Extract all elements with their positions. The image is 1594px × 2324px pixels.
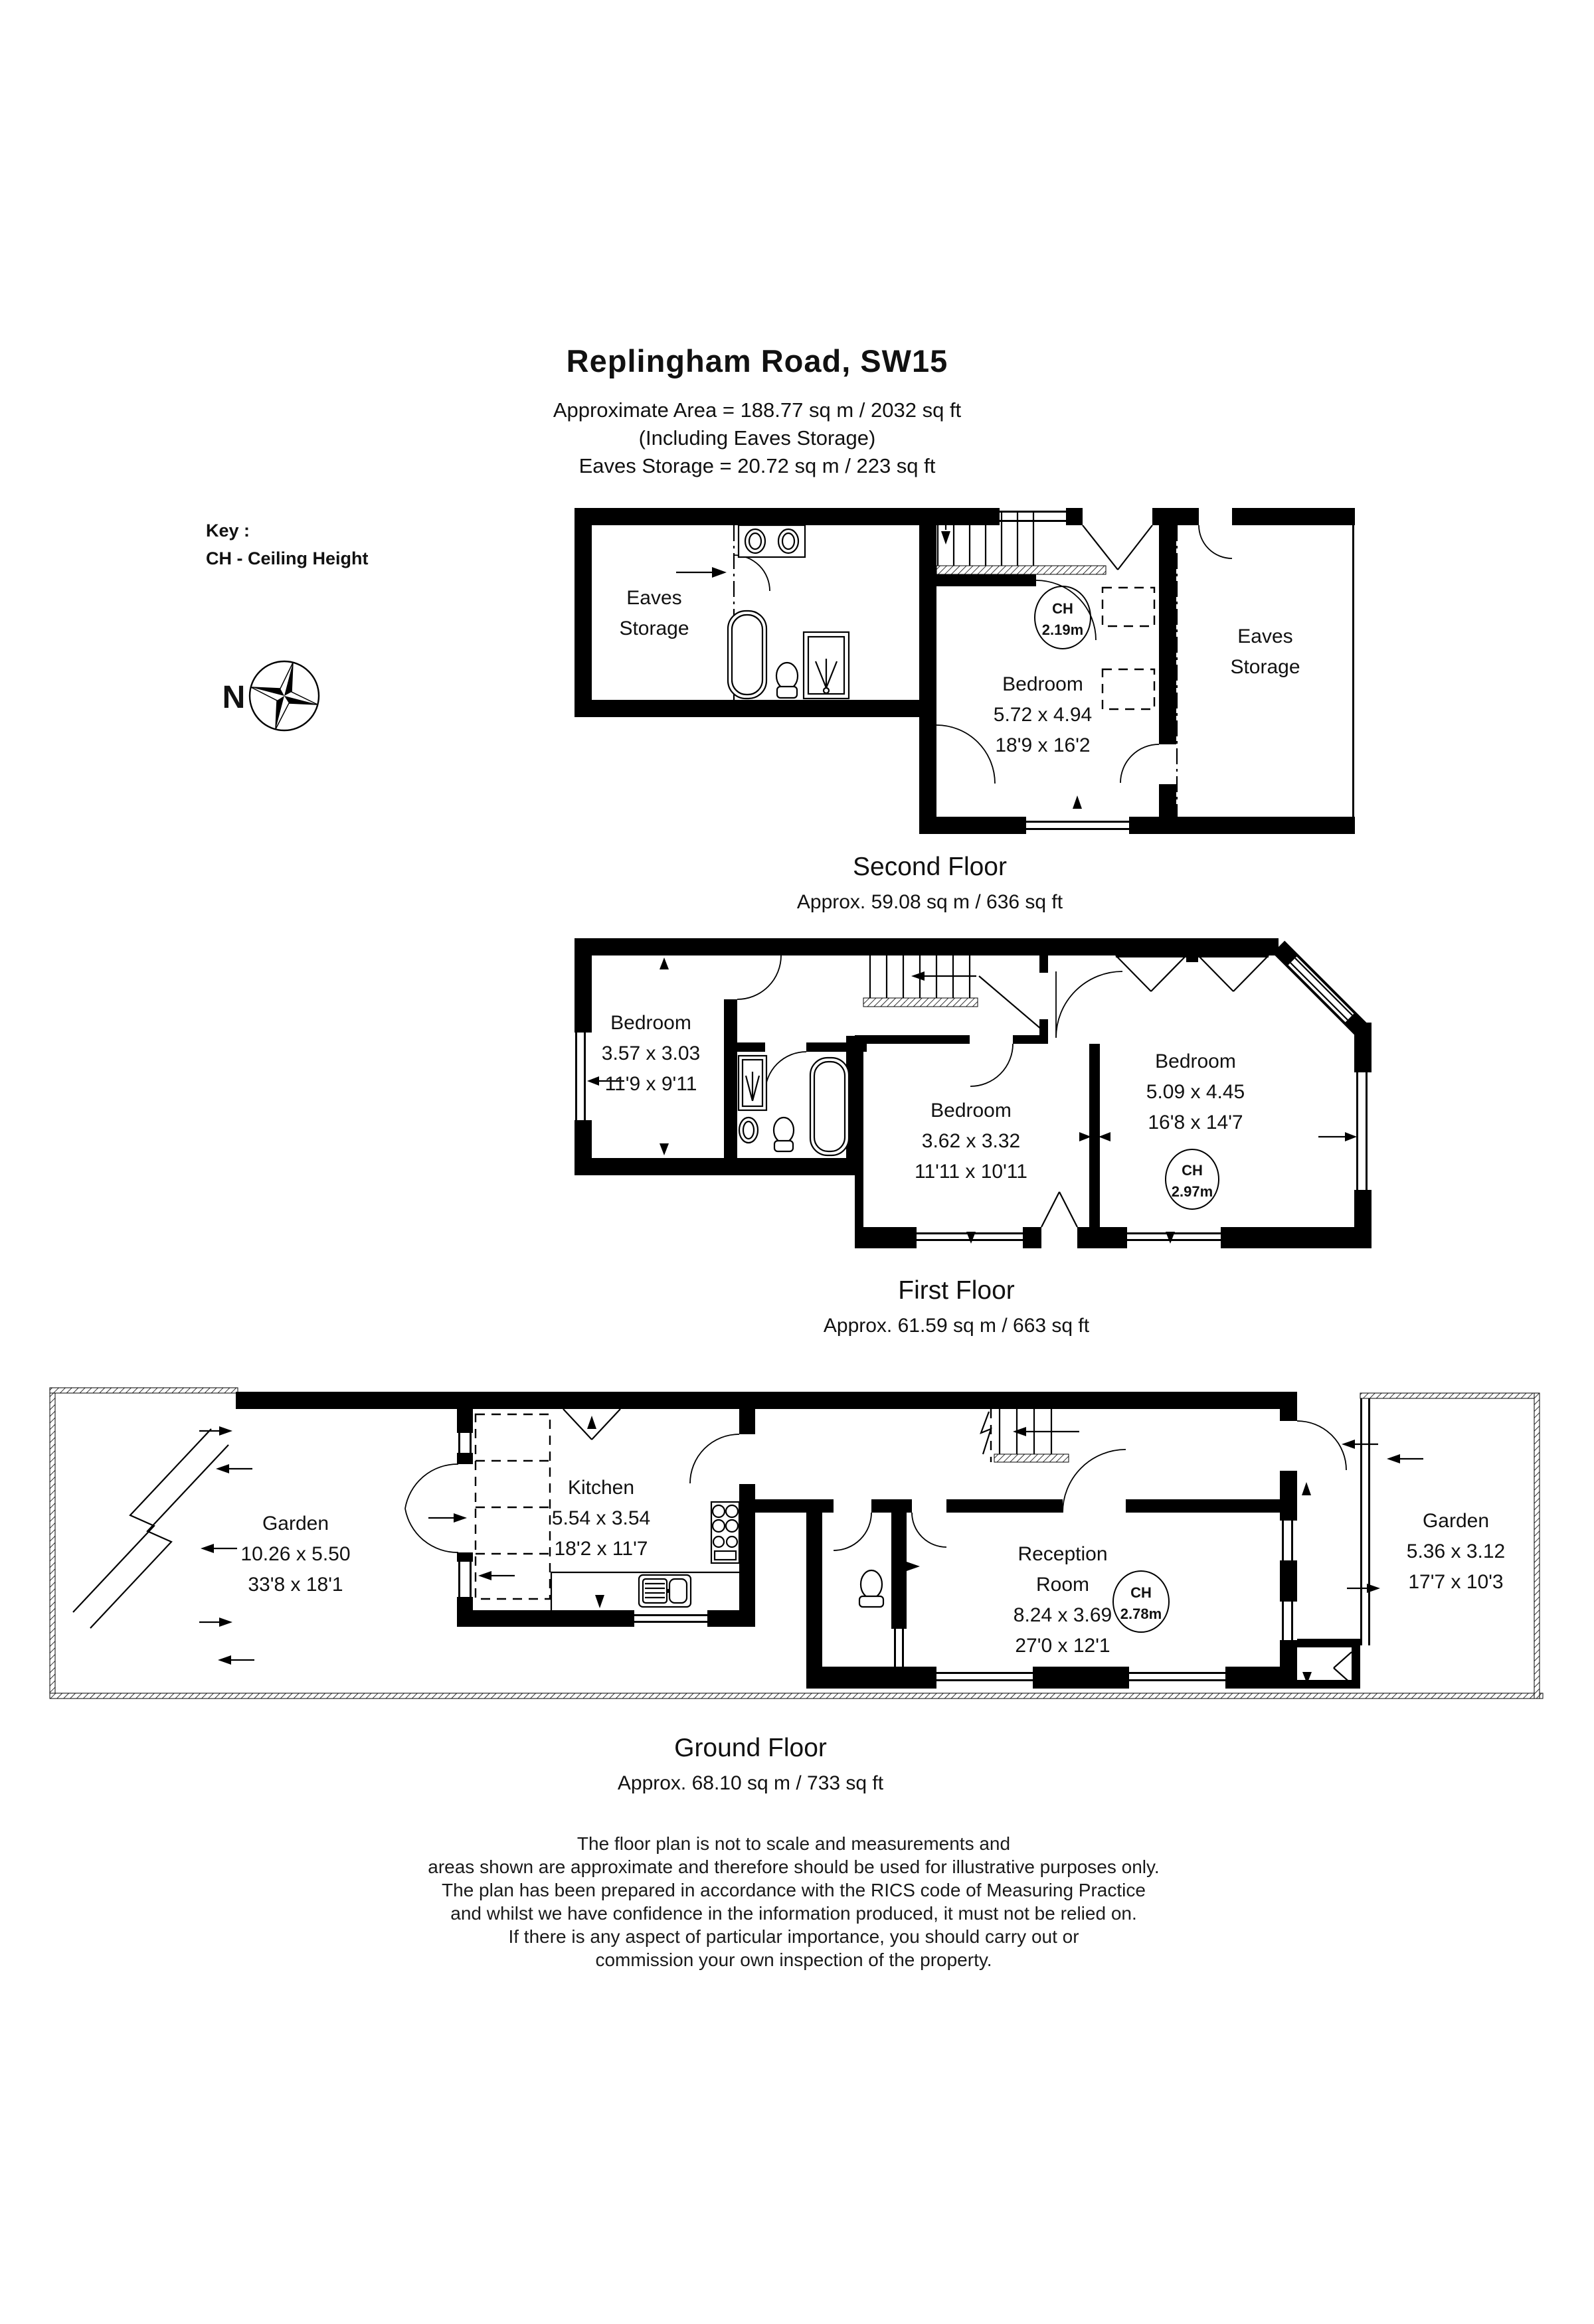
bedroom1f-right-name: Bedroom xyxy=(1155,1050,1236,1072)
second-floor-label: Second Floor xyxy=(853,853,1007,881)
bathtub xyxy=(728,611,766,699)
approximate-area: Approximate Area = 188.77 sq m / 2032 sq… xyxy=(553,398,962,422)
disclaimer-line: and whilst we have confidence in the inf… xyxy=(450,1903,1137,1924)
second-floor-caption: Second Floor Approx. 59.08 sq m / 636 sq… xyxy=(797,853,1063,913)
second-floor-plan: CH 2.19m Eaves Storage Eaves Storage Bed… xyxy=(575,508,1355,834)
ceiling-height-badge: CH 2.78m xyxy=(1113,1571,1169,1632)
shower xyxy=(739,1056,766,1110)
key-label: Key : xyxy=(206,521,250,540)
toilet xyxy=(776,663,798,698)
kitchen-imperial: 18'2 x 11'7 xyxy=(554,1538,648,1560)
first-floor-label: First Floor xyxy=(898,1276,1015,1305)
ground-floor-label: Ground Floor xyxy=(674,1734,827,1762)
floorplan-page: Replingham Road, SW15 Approximate Area =… xyxy=(0,0,1594,2324)
sink xyxy=(739,1118,758,1143)
including-eaves: (Including Eaves Storage) xyxy=(639,426,876,450)
bedroom1f-left-name: Bedroom xyxy=(610,1012,691,1034)
disclaimer: The floor plan is not to scale and measu… xyxy=(428,1833,1159,1970)
bedroom2f-name: Bedroom xyxy=(1002,673,1083,695)
disclaimer-line: areas shown are approximate and therefor… xyxy=(428,1857,1159,1877)
eaves-storage-area: Eaves Storage = 20.72 sq m / 223 sq ft xyxy=(579,454,936,477)
ground-floor-caption: Ground Floor Approx. 68.10 sq m / 733 sq… xyxy=(618,1734,884,1794)
first-floor-plan: CH 2.97m Bedroom 3.57 x 3.03 11'9 x 9'11… xyxy=(575,938,1372,1248)
ch-label: CH xyxy=(1182,1162,1203,1179)
ceiling-height-badge: CH 2.97m xyxy=(1166,1149,1219,1209)
toilet xyxy=(859,1570,883,1607)
bedroom1f-mid-metric: 3.62 x 3.32 xyxy=(922,1130,1020,1152)
first-floor-caption: First Floor Approx. 61.59 sq m / 663 sq … xyxy=(824,1276,1090,1337)
eaves-storage-right-label: Eaves xyxy=(1237,625,1292,647)
kitchen-name: Kitchen xyxy=(568,1477,634,1499)
disclaimer-line: The plan has been prepared in accordance… xyxy=(442,1880,1146,1900)
first-floor-area: Approx. 61.59 sq m / 663 sq ft xyxy=(824,1315,1090,1337)
key-ch-definition: CH - Ceiling Height xyxy=(206,548,369,568)
garden-left-metric: 10.26 x 5.50 xyxy=(240,1543,350,1565)
bedroom1f-left-imperial: 11'9 x 9'11 xyxy=(605,1073,697,1095)
garden-right-name: Garden xyxy=(1423,1510,1489,1532)
sink-unit xyxy=(739,525,805,557)
reception-name2: Room xyxy=(1036,1574,1089,1596)
ground-floor-plan: CH 2.78m Garden 10.26 x 5.50 33'8 x 18'1… xyxy=(50,1388,1543,1699)
disclaimer-line: commission your own inspection of the pr… xyxy=(595,1950,992,1970)
ch-value: 2.97m xyxy=(1172,1183,1213,1200)
kitchen-metric: 5.54 x 3.54 xyxy=(552,1507,650,1529)
bathtub xyxy=(810,1058,849,1155)
reception-name1: Reception xyxy=(1018,1543,1107,1565)
stairs-ground-floor xyxy=(981,1409,1079,1462)
eaves-storage-left-label2: Storage xyxy=(619,618,689,639)
garden-left-name: Garden xyxy=(262,1513,329,1535)
bedroom2f-imperial: 18'9 x 16'2 xyxy=(995,734,1090,756)
shower xyxy=(804,632,849,699)
stairs-second-floor xyxy=(936,511,1106,640)
ch-value: 2.19m xyxy=(1042,622,1083,638)
garden-right-metric: 5.36 x 3.12 xyxy=(1407,1540,1505,1562)
title-block: Replingham Road, SW15 Approximate Area =… xyxy=(553,343,962,477)
bedroom1f-mid-name: Bedroom xyxy=(930,1100,1012,1121)
north-label: N xyxy=(222,680,246,715)
ch-value: 2.78m xyxy=(1120,1606,1162,1622)
disclaimer-line: The floor plan is not to scale and measu… xyxy=(577,1833,1010,1854)
bedroom2f-metric: 5.72 x 4.94 xyxy=(994,704,1092,726)
ground-floor-area: Approx. 68.10 sq m / 733 sq ft xyxy=(618,1772,884,1794)
key-block: Key : CH - Ceiling Height xyxy=(206,521,369,568)
garden-right-imperial: 17'7 x 10'3 xyxy=(1408,1571,1503,1593)
bedroom1f-right-imperial: 16'8 x 14'7 xyxy=(1148,1112,1243,1133)
toilet xyxy=(774,1118,794,1151)
stairs-first-floor xyxy=(863,955,1046,1033)
bedroom1f-right-metric: 5.09 x 4.45 xyxy=(1146,1081,1245,1103)
page-title: Replingham Road, SW15 xyxy=(567,343,948,378)
reception-imperial: 27'0 x 12'1 xyxy=(1015,1635,1110,1657)
hob xyxy=(711,1502,739,1563)
bedroom1f-mid-imperial: 11'11 x 10'11 xyxy=(915,1161,1027,1183)
rooflight xyxy=(476,1414,550,1599)
ceiling-height-badge: CH 2.19m xyxy=(1035,586,1091,649)
reception-metric: 8.24 x 3.69 xyxy=(1014,1604,1112,1626)
garden-left-imperial: 33'8 x 18'1 xyxy=(248,1574,343,1596)
north-compass-icon: N xyxy=(222,661,319,730)
kitchen-sink xyxy=(639,1575,691,1607)
ch-label: CH xyxy=(1052,600,1073,617)
eaves-storage-right-label2: Storage xyxy=(1230,656,1300,678)
second-floor-area: Approx. 59.08 sq m / 636 sq ft xyxy=(797,891,1063,913)
bedroom1f-left-metric: 3.57 x 3.03 xyxy=(602,1042,700,1064)
bay-window xyxy=(1297,1639,1360,1689)
eaves-storage-left-label: Eaves xyxy=(626,587,681,609)
ch-label: CH xyxy=(1130,1584,1152,1601)
disclaimer-line: If there is any aspect of particular imp… xyxy=(508,1926,1079,1947)
